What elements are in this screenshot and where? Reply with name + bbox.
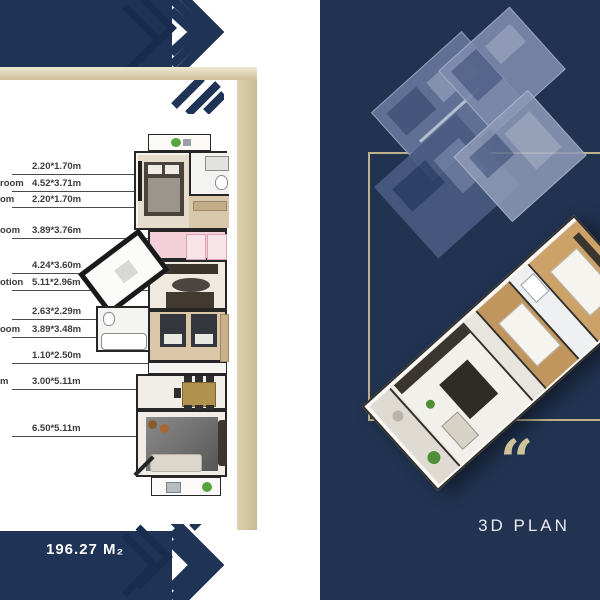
wardrobe	[220, 314, 229, 362]
sheet	[195, 334, 213, 344]
wall-segment	[138, 161, 142, 201]
dining-set	[439, 359, 498, 419]
dim-room	[485, 24, 526, 65]
brochure-page: 2.20*1.70mroom4.52*3.71mom2.20*1.70moom3…	[0, 0, 600, 600]
frame-left-line	[368, 152, 370, 421]
bottom-balcony	[151, 477, 221, 496]
living-room	[136, 410, 227, 477]
sink	[205, 156, 229, 171]
lounge-sofa	[150, 454, 202, 472]
balcony-bench	[183, 139, 191, 146]
wardrobe	[193, 201, 227, 211]
rug-oval	[172, 278, 210, 292]
plant-icon	[202, 482, 212, 492]
master-bedroom	[138, 155, 189, 228]
dining-room	[136, 374, 227, 410]
chevron-motif-bottom-icon	[118, 524, 224, 600]
twin-bed	[191, 314, 217, 347]
kid-bed	[186, 234, 206, 260]
plant-icon	[425, 448, 443, 466]
3d-plan-caption: 3D PLAN	[449, 516, 599, 536]
bathroom-small	[96, 306, 150, 352]
chair	[184, 376, 192, 382]
floor-plan-2d	[0, 0, 320, 600]
door-mat	[114, 260, 138, 284]
dim-room	[469, 133, 514, 178]
upper-rooms-block	[134, 151, 227, 230]
balcony-chair	[166, 482, 181, 493]
pouf	[160, 424, 169, 433]
sheet	[164, 334, 182, 344]
master-bed	[144, 162, 184, 216]
sofa	[218, 420, 227, 466]
pouf	[148, 420, 157, 429]
bathroom-top	[189, 153, 229, 196]
dressing-area	[189, 196, 229, 228]
bathtub	[101, 333, 147, 350]
pillow	[165, 165, 179, 174]
area-label: 196.27 M₂	[46, 541, 124, 558]
plant-icon	[424, 398, 437, 411]
twin-bed	[160, 314, 186, 347]
tv-console	[162, 264, 218, 274]
top-balcony	[148, 134, 211, 151]
dim-room	[504, 111, 561, 169]
sofa	[166, 292, 214, 308]
toilet	[103, 312, 115, 326]
quote-mark-icon: “	[500, 432, 600, 490]
plant-icon	[171, 138, 181, 147]
corridor	[148, 362, 227, 374]
dining-table	[182, 382, 216, 407]
pillow	[148, 165, 162, 174]
kid-bed	[207, 234, 227, 260]
blanket	[148, 178, 180, 212]
balcony-table	[390, 408, 406, 424]
bedroom-twin	[148, 310, 227, 362]
dim-room	[392, 160, 445, 212]
dim-room	[386, 87, 436, 136]
chair	[206, 376, 214, 382]
sofa	[441, 411, 479, 450]
chair	[195, 376, 203, 382]
toilet	[215, 175, 228, 190]
chair	[174, 388, 181, 398]
